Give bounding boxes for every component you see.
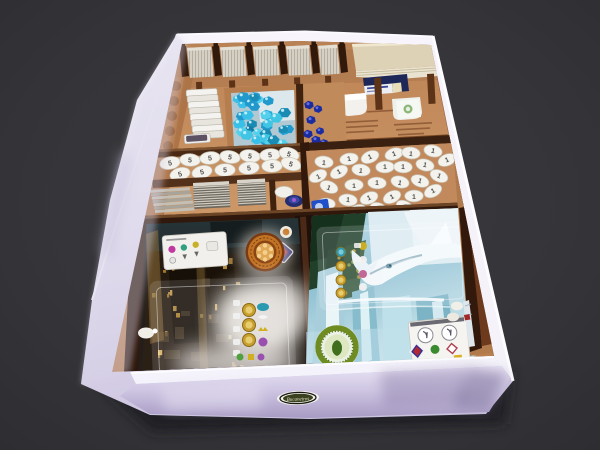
svg-text:5: 5 [268, 152, 273, 159]
svg-text:5: 5 [223, 167, 227, 174]
svg-text:1: 1 [412, 194, 416, 201]
svg-text:1: 1 [401, 164, 405, 171]
svg-text:5: 5 [188, 157, 192, 164]
svg-text:1: 1 [383, 164, 387, 171]
svg-text:Bucaneiros: Bucaneiros [287, 397, 310, 403]
svg-text:1: 1 [375, 180, 379, 187]
svg-text:5: 5 [270, 163, 274, 170]
svg-text:1: 1 [352, 183, 356, 190]
